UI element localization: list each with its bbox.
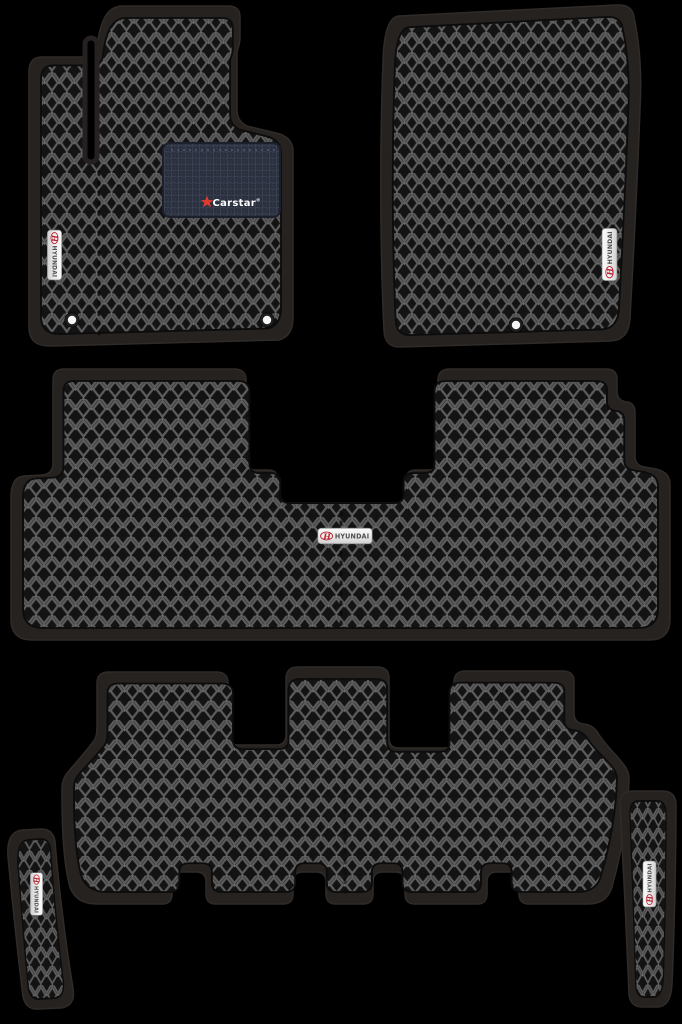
hyundai-badge-passenger bbox=[602, 228, 617, 280]
hyundai-badge-rear-right bbox=[643, 861, 656, 907]
rear-left-side-mat bbox=[8, 829, 74, 1009]
front-passenger-mat-shape-pattern bbox=[393, 17, 629, 335]
hyundai-badge-rear-left bbox=[30, 873, 42, 916]
fixing-hole-center bbox=[509, 318, 523, 332]
third-row-mat bbox=[62, 667, 629, 904]
hyundai-badge-driver bbox=[47, 230, 61, 280]
front-passenger-mat bbox=[381, 5, 641, 347]
hyundai-badge-second-row bbox=[318, 528, 372, 544]
heel-pad: Carstar® bbox=[163, 143, 280, 217]
rear-right-side-mat bbox=[620, 791, 676, 1007]
fixing-hole-right bbox=[260, 313, 274, 327]
slot-cutout bbox=[85, 38, 97, 162]
product-photo: H HYUNDAI Carstar® bbox=[0, 0, 682, 1024]
fixing-hole-left bbox=[65, 313, 79, 327]
second-row-mat bbox=[11, 369, 670, 640]
carstar-text: Carstar® bbox=[213, 198, 261, 210]
floor-mat-set-illustration: H HYUNDAI Carstar® bbox=[0, 0, 682, 1024]
front-driver-mat: Carstar® bbox=[29, 6, 293, 346]
